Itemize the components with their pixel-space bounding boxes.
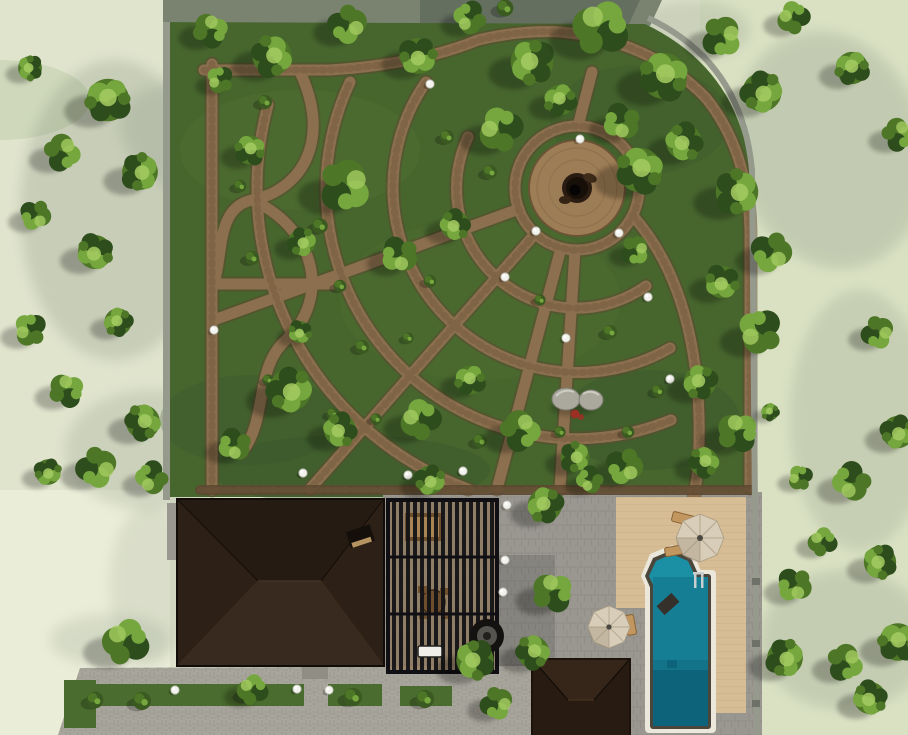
main-house (167, 498, 385, 667)
patio-umbrella (588, 606, 630, 648)
door-step (302, 667, 328, 679)
west-wall (163, 22, 170, 500)
boulder (579, 390, 603, 410)
wall-post (752, 700, 760, 707)
planting-strip (78, 684, 304, 706)
patio-umbrella (676, 514, 724, 562)
garden-swing-bench (418, 646, 442, 657)
wall-post (752, 578, 760, 585)
garden-shed (531, 658, 631, 735)
flower-patch (578, 414, 584, 420)
wall-post (752, 640, 760, 647)
plaza-seat (559, 196, 571, 204)
aerial-landscape-render (0, 0, 908, 735)
